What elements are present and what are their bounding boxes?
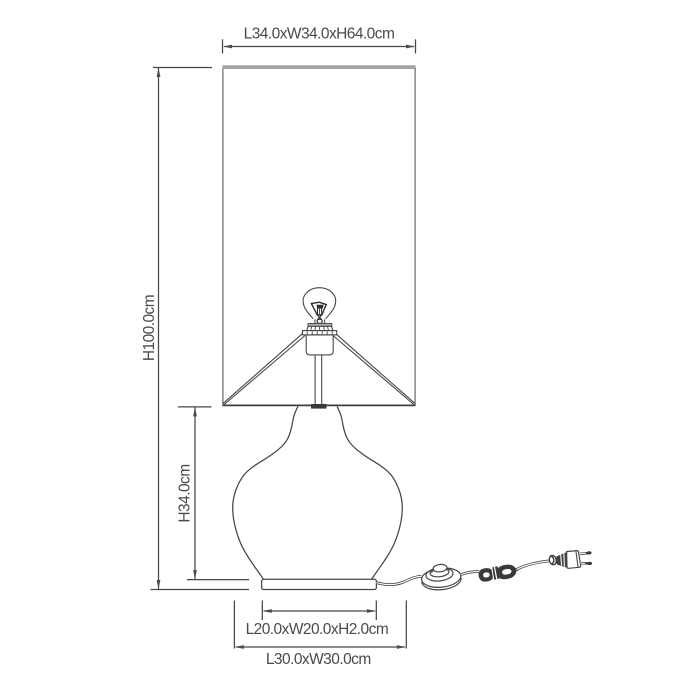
svg-text:L30.0xW30.0cm: L30.0xW30.0cm [266, 651, 371, 668]
svg-text:L34.0xW34.0xH64.0cm: L34.0xW34.0xH64.0cm [244, 26, 395, 43]
svg-text:H34.0cm: H34.0cm [177, 464, 194, 522]
svg-text:L20.0xW20.0xH2.0cm: L20.0xW20.0xH2.0cm [246, 621, 389, 638]
svg-text:H100.0cm: H100.0cm [141, 295, 158, 361]
